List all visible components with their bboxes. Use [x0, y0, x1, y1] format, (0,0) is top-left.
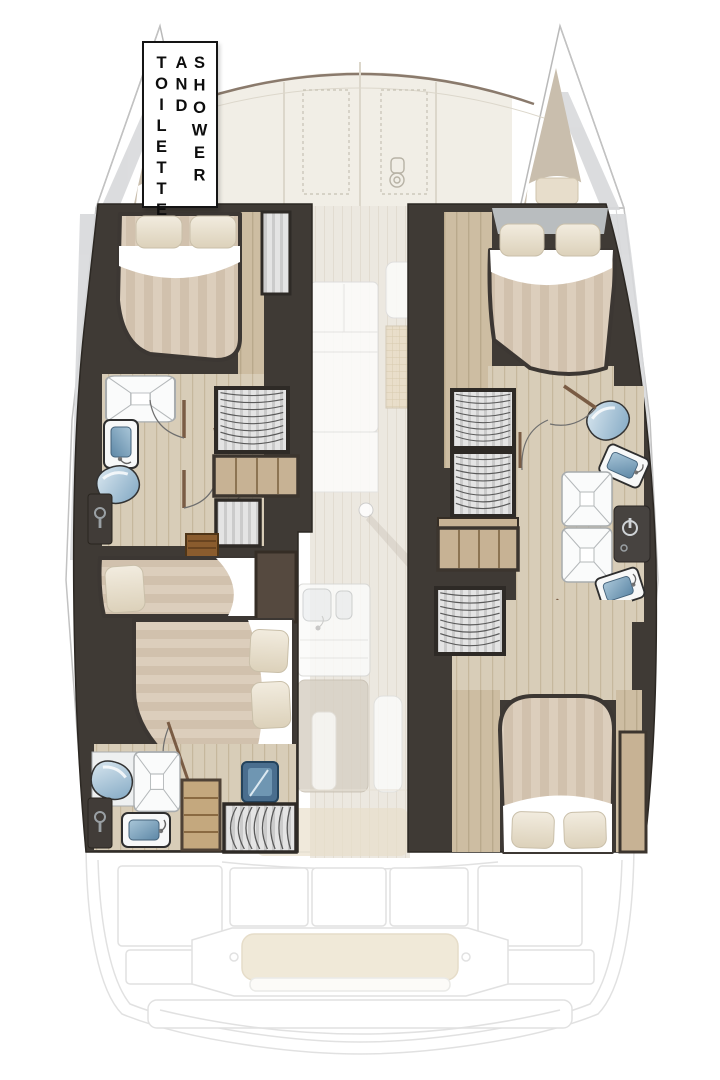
starboard-aft-cabin	[436, 588, 646, 852]
toilette-and-shower-sign: TOILETTE AND SHOWER	[142, 41, 218, 208]
salon-sofa-icon	[310, 282, 378, 492]
pillow-icon	[556, 224, 600, 256]
port-hull	[74, 204, 312, 852]
shower-cabin-icon	[562, 528, 612, 582]
light-switch-panel	[614, 506, 650, 562]
shower-cabin-icon	[134, 752, 180, 811]
cockpit-ghost	[86, 840, 634, 1054]
pillow-icon	[104, 565, 145, 614]
pillow-icon	[511, 811, 554, 848]
galley-sink-icon	[298, 584, 370, 676]
sign-word-and: AND	[173, 54, 190, 119]
bench-seat	[620, 732, 646, 852]
cockpit-bench-icon	[192, 928, 508, 996]
washbasin-icon	[122, 813, 170, 847]
companionway-steps-icon	[182, 780, 220, 850]
companionway-steps-icon	[186, 534, 218, 558]
pillow-icon	[190, 216, 236, 248]
kitchen-island-icon	[298, 680, 402, 792]
sign-word-shower: SHOWER	[191, 54, 208, 189]
port-single-berth	[100, 552, 297, 622]
floor-plan-drawing	[0, 0, 720, 1080]
catamaran-floor-plan: TOILETTE AND SHOWER	[0, 0, 720, 1080]
door-lock-panel	[88, 494, 112, 544]
pillow-icon	[500, 224, 544, 256]
hanging-locker-icon	[262, 212, 290, 294]
pillow-icon	[251, 681, 291, 729]
sign-word-toilette: TOILETTE	[153, 54, 170, 222]
shower-cabin-icon	[562, 472, 612, 526]
door-lock-panel	[88, 798, 112, 848]
washbasin-icon	[104, 420, 138, 468]
pillow-icon	[249, 629, 289, 673]
engine-hatch-icon	[242, 762, 278, 802]
pillow-icon	[563, 811, 606, 848]
shower-cabin-icon	[106, 376, 175, 422]
double-bed-icon	[500, 696, 614, 852]
double-bed-icon	[118, 214, 240, 360]
starboard-hull	[408, 204, 656, 852]
